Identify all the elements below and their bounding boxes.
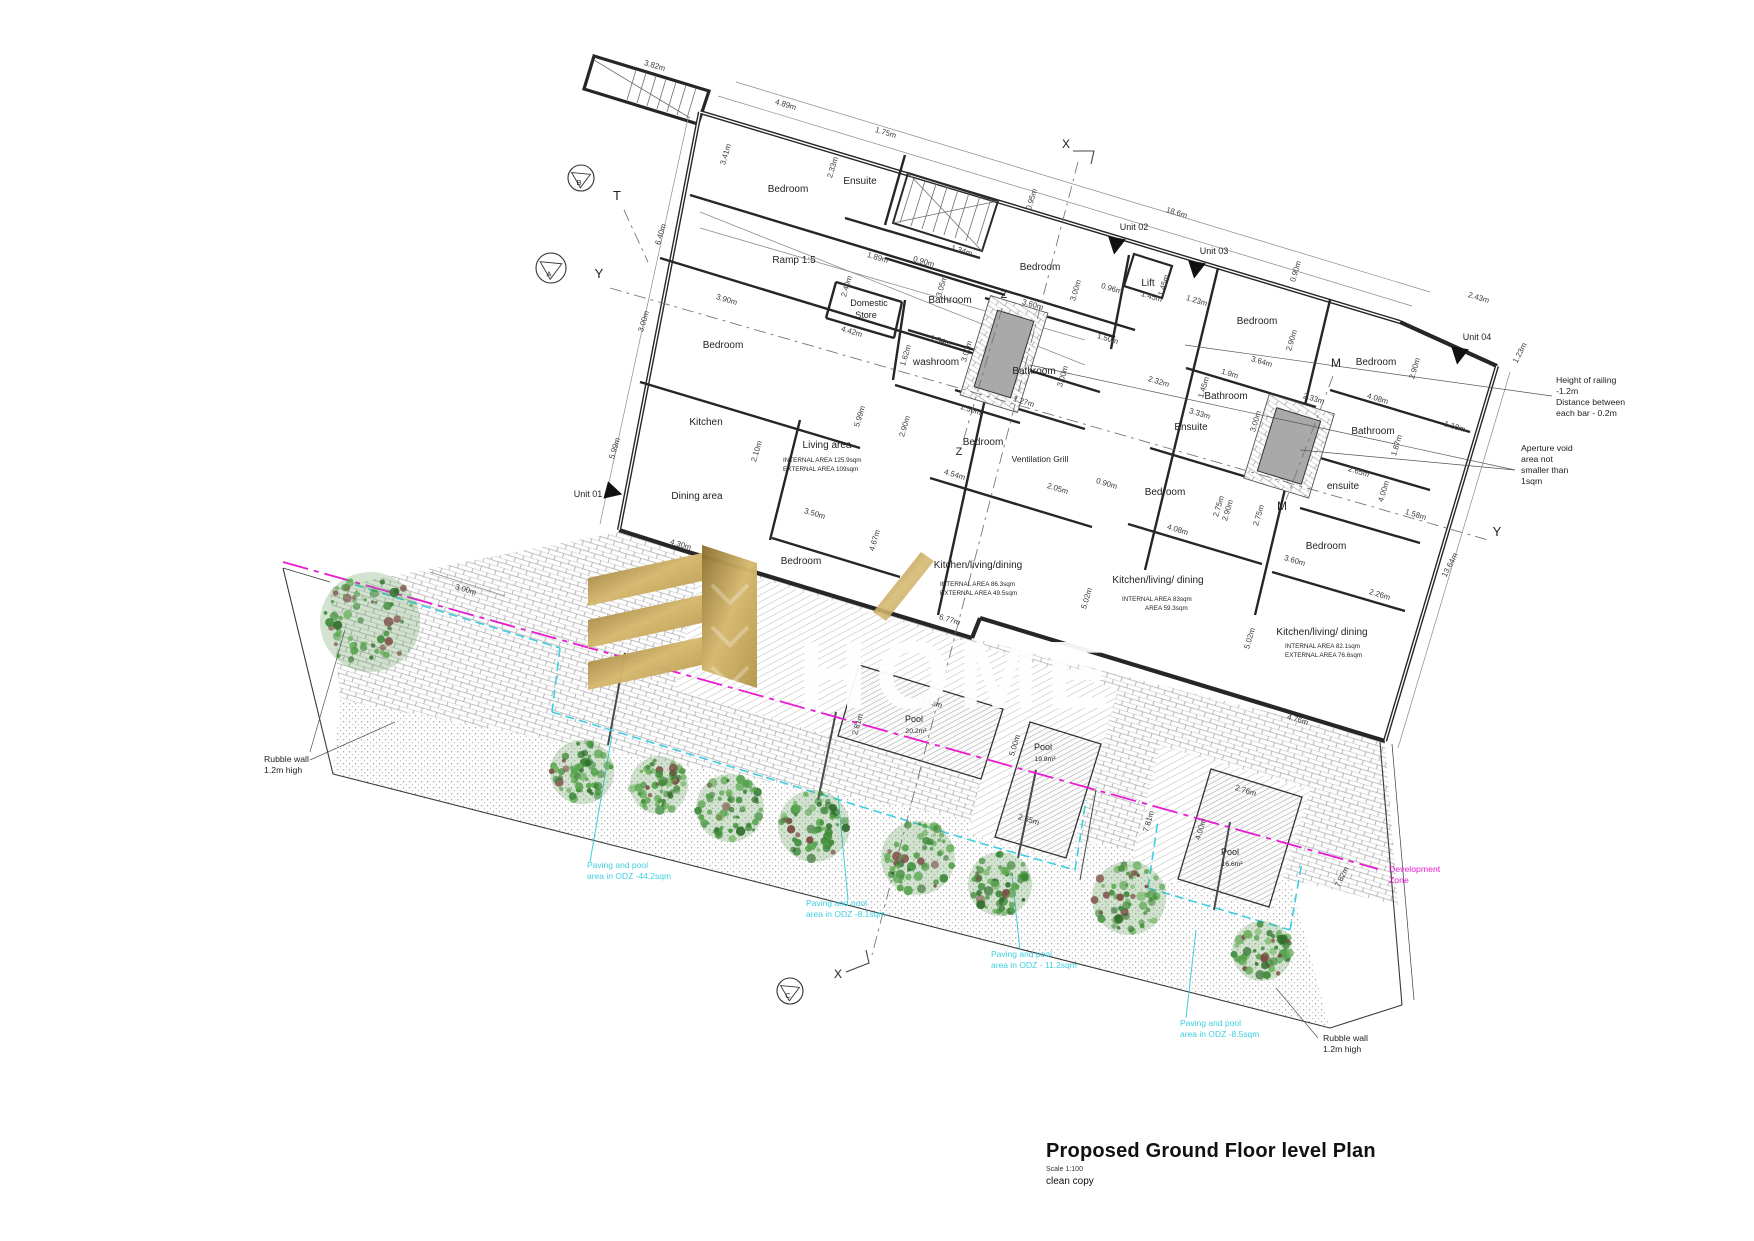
room-label: Bathroom — [1012, 366, 1055, 377]
tree-foliage — [1021, 873, 1029, 881]
tree-foliage — [922, 824, 926, 828]
tree-foliage — [343, 610, 352, 619]
dimension-label: 1.23m — [1511, 341, 1529, 364]
room-label: Dining area — [671, 491, 723, 502]
room-label: Bedroom — [1306, 541, 1347, 552]
tree-foliage — [400, 585, 407, 592]
tree-foliage — [1267, 964, 1271, 968]
tree-foliage — [1285, 939, 1289, 943]
tree-foliage — [1127, 926, 1134, 933]
aperture-note: smaller than — [1521, 465, 1568, 475]
tree-foliage — [393, 615, 401, 623]
odz-label: area in ODZ -8.1sqm — [806, 909, 885, 919]
tree-foliage — [1118, 865, 1125, 872]
tree-foliage — [787, 825, 795, 833]
tree-foliage — [1116, 893, 1124, 901]
tree-foliage — [352, 595, 357, 600]
tree-foliage — [929, 841, 932, 844]
section-marker: Z — [1001, 289, 1008, 301]
tree-foliage — [1119, 881, 1128, 890]
tree-foliage — [1131, 870, 1137, 876]
tree-foliage — [978, 876, 982, 880]
tree-foliage — [579, 768, 584, 773]
tree-foliage — [922, 837, 930, 845]
tree-foliage — [971, 877, 976, 882]
room-label: Ensuite — [843, 176, 877, 187]
tree-foliage — [1151, 917, 1157, 923]
room-label: Bedroom — [1020, 262, 1061, 273]
room-label: Store — [855, 310, 877, 320]
tree-foliage — [371, 643, 376, 648]
tree-foliage — [1153, 875, 1158, 880]
tree-foliage — [829, 814, 835, 820]
tree-foliage — [1138, 919, 1144, 925]
tree-foliage — [1269, 948, 1276, 955]
tree-foliage — [1234, 943, 1239, 948]
tree-foliage — [1240, 958, 1248, 966]
area-label: EXTERNAL AREA 49.5sqm — [940, 590, 1017, 597]
tree-foliage — [350, 646, 358, 654]
tree-foliage — [581, 750, 588, 757]
tree-foliage — [902, 844, 909, 851]
tree-foliage — [1123, 913, 1130, 920]
tree-foliage — [655, 770, 663, 778]
tree-foliage — [1255, 962, 1259, 966]
tree-foliage — [970, 892, 977, 899]
tree-foliage — [1254, 935, 1260, 941]
tree-foliage — [817, 802, 822, 807]
area-label: EXTERNAL AREA 76.6sqm — [1285, 652, 1362, 659]
tree-foliage — [943, 855, 949, 861]
tree-foliage — [939, 874, 948, 883]
tree-foliage — [803, 792, 808, 797]
tree-foliage — [728, 828, 733, 833]
dimension-label: 18.6m — [1165, 205, 1188, 220]
tree-foliage — [890, 859, 894, 863]
tree-foliage — [1005, 882, 1011, 888]
tree-foliage — [586, 783, 592, 789]
tree-foliage — [1091, 896, 1099, 904]
tree-foliage — [976, 900, 985, 909]
tree-foliage — [707, 809, 712, 814]
viewpoint-letter: C — [785, 991, 791, 1000]
tree-foliage — [353, 603, 360, 610]
dimension-label: 0.90m — [1288, 260, 1303, 283]
tree-foliage — [746, 823, 751, 828]
area-label: INTERNAL AREA 83sqm — [1122, 596, 1192, 603]
tree-foliage — [600, 752, 607, 759]
tree-foliage — [1133, 861, 1142, 870]
tree-foliage — [374, 649, 379, 654]
room-label: Bathroom — [928, 295, 971, 306]
tree-foliage — [700, 819, 707, 826]
tree-foliage — [1013, 884, 1019, 890]
watermark-text: HOME — [798, 622, 1118, 729]
tree-foliage — [1009, 908, 1014, 913]
room-label: Domestic — [850, 298, 888, 308]
tree-foliage — [1009, 872, 1013, 876]
tree-foliage — [384, 617, 394, 627]
tree-foliage — [979, 858, 986, 865]
tree-foliage — [333, 621, 342, 630]
tree-foliage — [790, 846, 796, 852]
railing-note: each bar - 0.2m — [1556, 408, 1617, 418]
tree-foliage — [948, 862, 955, 869]
odz-label: Paving and pool — [1180, 1018, 1241, 1028]
tree-foliage — [331, 600, 335, 604]
tree-foliage — [726, 779, 729, 782]
tree-foliage — [383, 651, 390, 658]
tree-foliage — [708, 778, 717, 787]
odz-label: Paving and pool — [991, 949, 1052, 959]
tree-foliage — [389, 588, 398, 597]
tree-foliage — [729, 807, 735, 813]
tree-foliage — [1277, 929, 1282, 934]
tree-foliage — [749, 788, 754, 793]
tree-foliage — [976, 866, 979, 869]
tree-foliage — [917, 884, 926, 893]
tree-foliage — [758, 808, 763, 813]
viewpoint-symbol: A — [536, 253, 566, 283]
tree-foliage — [348, 656, 354, 662]
tree-foliage — [1021, 862, 1026, 867]
tree-foliage — [643, 806, 648, 811]
tree-foliage — [726, 789, 733, 796]
tree-foliage — [640, 770, 644, 774]
tree-foliage — [921, 862, 930, 871]
tree-foliage — [930, 847, 934, 851]
tree-foliage — [752, 828, 755, 831]
tree-foliage — [380, 644, 386, 650]
tree-foliage — [1263, 971, 1271, 979]
tree-foliage — [1286, 958, 1290, 962]
tree-foliage — [333, 590, 339, 596]
tree-foliage — [335, 633, 339, 637]
dimension-label: 13.64m — [1440, 551, 1460, 578]
tree-foliage — [796, 806, 802, 812]
tree-foliage — [590, 792, 594, 796]
tree-foliage — [334, 642, 338, 646]
dimension-label: 5.99m — [607, 437, 622, 460]
odz-label: area in ODZ -8.5sqm — [1180, 1029, 1259, 1039]
tree-foliage — [1099, 911, 1103, 915]
area-label: INTERNAL AREA 86.3sqm — [940, 581, 1015, 588]
tree-foliage — [576, 742, 580, 746]
dimension-label: 2.43m — [1467, 290, 1490, 305]
tree-foliage — [667, 791, 672, 796]
tree-foliage — [931, 861, 939, 869]
tree-foliage — [913, 852, 919, 858]
tree-foliage — [387, 626, 391, 630]
tree-foliage — [933, 879, 939, 885]
tree-foliage — [1276, 971, 1280, 975]
development-zone: Development — [1389, 864, 1441, 874]
tree-foliage — [795, 832, 800, 837]
viewpoint-symbol: B — [568, 165, 594, 191]
tree-foliage — [1271, 934, 1276, 939]
dimension-label: 0.95m — [1024, 188, 1039, 211]
tree-foliage — [383, 631, 389, 637]
tree-foliage — [807, 854, 816, 863]
tree-foliage — [1096, 874, 1104, 882]
tree-foliage — [1139, 902, 1147, 910]
tree-foliage — [728, 835, 735, 842]
rubble-wall-left: Rubble wall — [264, 754, 309, 764]
tree-foliage — [325, 618, 334, 627]
tree-foliage — [831, 850, 836, 855]
tree-foliage — [736, 815, 739, 818]
tree-foliage — [1278, 935, 1288, 945]
tree-foliage — [706, 793, 711, 798]
tree-foliage — [559, 787, 563, 791]
unit-label: Unit 02 — [1120, 222, 1149, 232]
viewpoint-letter: A — [546, 269, 551, 278]
tree-foliage — [1243, 947, 1252, 956]
tree-foliage — [743, 789, 747, 793]
tree-foliage — [1122, 902, 1130, 910]
section-marker: Y — [1493, 524, 1502, 539]
tree-foliage — [922, 830, 928, 836]
tree-foliage — [370, 589, 379, 598]
title-block: Proposed Ground Floor level Plan Scale 1… — [1046, 1140, 1376, 1187]
railing-note: -1.2m — [1556, 386, 1578, 396]
tree-foliage — [336, 654, 340, 658]
tree-foliage — [653, 759, 657, 763]
tree-foliage — [822, 827, 826, 831]
tree-foliage — [900, 859, 904, 863]
tree-foliage — [821, 838, 828, 845]
tree-foliage — [1261, 946, 1265, 950]
viewpoint-letter: B — [576, 178, 581, 187]
tree-foliage — [741, 806, 745, 810]
section-marker: X — [1062, 137, 1070, 151]
room-label: Ensuite — [1174, 422, 1208, 433]
odz-label: area in ODZ -44.2sqm — [587, 871, 671, 881]
aperture-note: area not — [1521, 454, 1553, 464]
dimension-label: 6.40m — [653, 223, 668, 246]
tree-foliage — [566, 788, 571, 793]
tree-foliage — [668, 805, 676, 813]
tree-foliage — [348, 636, 354, 642]
tree-foliage — [579, 773, 587, 781]
tree-foliage — [887, 849, 892, 854]
area-label: EXTERNAL AREA 109sqm — [783, 466, 858, 473]
tree-foliage — [918, 822, 921, 825]
tree-foliage — [553, 776, 560, 783]
tree-foliage — [1253, 949, 1257, 953]
section-marker: T — [613, 188, 621, 203]
unit-label: Unit 03 — [1200, 246, 1229, 256]
tree-foliage — [727, 796, 735, 804]
tree-foliage — [922, 845, 927, 850]
tree-foliage — [1234, 956, 1240, 962]
room-label: Bedroom — [703, 340, 744, 351]
tree-foliage — [377, 635, 385, 643]
tree-foliage — [816, 848, 820, 852]
section-marker: Z — [956, 446, 963, 458]
tree-foliage — [894, 842, 900, 848]
dimension-label: 1.75m — [874, 125, 897, 140]
tree — [881, 821, 955, 895]
tree-foliage — [1257, 921, 1264, 928]
tree-foliage — [1000, 897, 1005, 902]
tree-foliage — [357, 617, 363, 623]
tree-foliage — [744, 780, 753, 789]
tree-foliage — [904, 886, 913, 895]
tree-foliage — [736, 797, 743, 804]
tree-foliage — [835, 810, 839, 814]
tree-foliage — [1009, 902, 1015, 908]
copy-note: clean copy — [1046, 1176, 1376, 1187]
tree-foliage — [914, 872, 923, 881]
tree-foliage — [569, 792, 577, 800]
tree-foliage — [1111, 907, 1118, 914]
tree-foliage — [400, 620, 404, 624]
tree-foliage — [937, 838, 941, 842]
tree-foliage — [1117, 926, 1121, 930]
tree-foliage — [397, 651, 402, 656]
tree-foliage — [673, 766, 677, 770]
room-label: Kitchen/living/ dining — [1112, 575, 1203, 586]
tree-foliage — [660, 789, 664, 793]
tree-foliage — [818, 791, 823, 796]
tree-foliage — [1130, 894, 1135, 899]
tree-foliage — [976, 890, 982, 896]
tree-foliage — [1136, 891, 1146, 901]
tree-foliage — [645, 785, 650, 790]
tree-foliage — [719, 790, 724, 795]
rubble-wall-right: 1.2m high — [1323, 1044, 1361, 1054]
tree-foliage — [794, 813, 798, 817]
tree-foliage — [575, 782, 583, 790]
tree-foliage — [996, 851, 1003, 858]
tree-foliage — [806, 836, 813, 843]
area-label: INTERNAL AREA 125.9sqm — [783, 457, 862, 464]
tree-foliage — [813, 841, 819, 847]
tree-foliage — [1245, 966, 1253, 974]
tree-foliage — [933, 824, 942, 833]
unit-entrance-arrow — [603, 481, 624, 503]
tree-foliage — [826, 823, 832, 829]
tree-foliage — [819, 820, 824, 825]
tree-foliage — [805, 809, 812, 816]
tree-foliage — [1154, 896, 1158, 900]
aperture-note: 1sqm — [1521, 476, 1542, 486]
railing-note: Height of railing — [1556, 375, 1617, 385]
tree-foliage — [374, 601, 377, 604]
tree-foliage — [558, 768, 565, 775]
tree-foliage — [904, 821, 911, 828]
tree-foliage — [680, 781, 686, 787]
tree-foliage — [346, 579, 354, 587]
floor-plan-page: BedroomEnsuiteRamp 1:5DomesticStoreBathr… — [0, 0, 1754, 1241]
tree-foliage — [1001, 911, 1006, 916]
viewpoint-symbol: C — [777, 978, 803, 1004]
area-label: INTERNAL AREA 82.1sqm — [1285, 643, 1360, 650]
tree-foliage — [586, 741, 592, 747]
tree-foliage — [1148, 919, 1152, 923]
tree-foliage — [987, 866, 991, 870]
tree-foliage — [594, 792, 601, 799]
tree-foliage — [648, 793, 652, 797]
tree-foliage — [343, 594, 347, 598]
odz-label: Paving and pool — [806, 898, 867, 908]
tree-foliage — [655, 805, 665, 815]
section-marker: Y — [595, 266, 604, 281]
tree-foliage — [1130, 884, 1135, 889]
tree-foliage — [718, 797, 722, 801]
dimension-label: 3.00m — [636, 310, 651, 333]
room-label: Kitchen/living/ dining — [1276, 627, 1367, 638]
tree-foliage — [646, 765, 651, 770]
tree-foliage — [1114, 914, 1124, 924]
room-label: Bedroom — [963, 437, 1004, 448]
tree-foliage — [1144, 869, 1149, 874]
tree-foliage — [889, 866, 895, 872]
tree-foliage — [823, 844, 831, 852]
tree-foliage — [363, 598, 366, 601]
tree-foliage — [549, 768, 555, 774]
tree-foliage — [585, 760, 592, 767]
tree-foliage — [787, 818, 793, 824]
tree-foliage — [1022, 898, 1026, 902]
tree-foliage — [1145, 885, 1148, 888]
tree-foliage — [752, 819, 759, 826]
tree-foliage — [942, 839, 946, 843]
tree-foliage — [680, 774, 686, 780]
logo-spine — [702, 545, 757, 688]
tree-foliage — [814, 827, 820, 833]
tree-foliage — [825, 799, 831, 805]
tree-foliage — [1123, 891, 1129, 897]
room-label: washroom — [912, 357, 959, 368]
tree-foliage — [754, 798, 758, 802]
tree-foliage — [736, 826, 745, 835]
tree-foliage — [694, 807, 702, 815]
tree-foliage — [885, 858, 890, 863]
tree-foliage — [1278, 953, 1282, 957]
tree-foliage — [733, 815, 736, 818]
pool-label: Pool — [1221, 847, 1239, 857]
unit-label: Unit 04 — [1463, 332, 1492, 342]
rubble-wall-left: 1.2m high — [264, 765, 302, 775]
room-label: Bedroom — [781, 556, 822, 567]
tree-foliage — [949, 846, 954, 851]
room-label: Kitchen — [689, 417, 722, 428]
room-label: Bathroom — [1204, 391, 1247, 402]
tree-foliage — [364, 641, 368, 645]
pool-area-label: 19.8m² — [1034, 756, 1056, 763]
room-label: Kitchen/living/dining — [934, 560, 1022, 571]
tree-foliage — [384, 637, 393, 646]
tree-foliage — [594, 782, 603, 791]
tree-foliage — [998, 905, 1005, 912]
development-zone: Zone — [1389, 875, 1409, 885]
section-marker: X — [834, 967, 842, 981]
tree-foliage — [324, 611, 328, 615]
room-label: Bedroom — [768, 184, 809, 195]
room-label: Lift — [1141, 278, 1155, 289]
tree-foliage — [907, 868, 911, 872]
section-marker: M — [1331, 356, 1341, 370]
pool-area-label: 20.2m² — [905, 728, 927, 735]
section-marker: M — [1277, 499, 1287, 513]
tree-foliage — [655, 795, 659, 799]
room-label: Bedroom — [1145, 487, 1186, 498]
tree-foliage — [389, 602, 394, 607]
tree-foliage — [985, 895, 990, 900]
tree-foliage — [893, 874, 903, 884]
